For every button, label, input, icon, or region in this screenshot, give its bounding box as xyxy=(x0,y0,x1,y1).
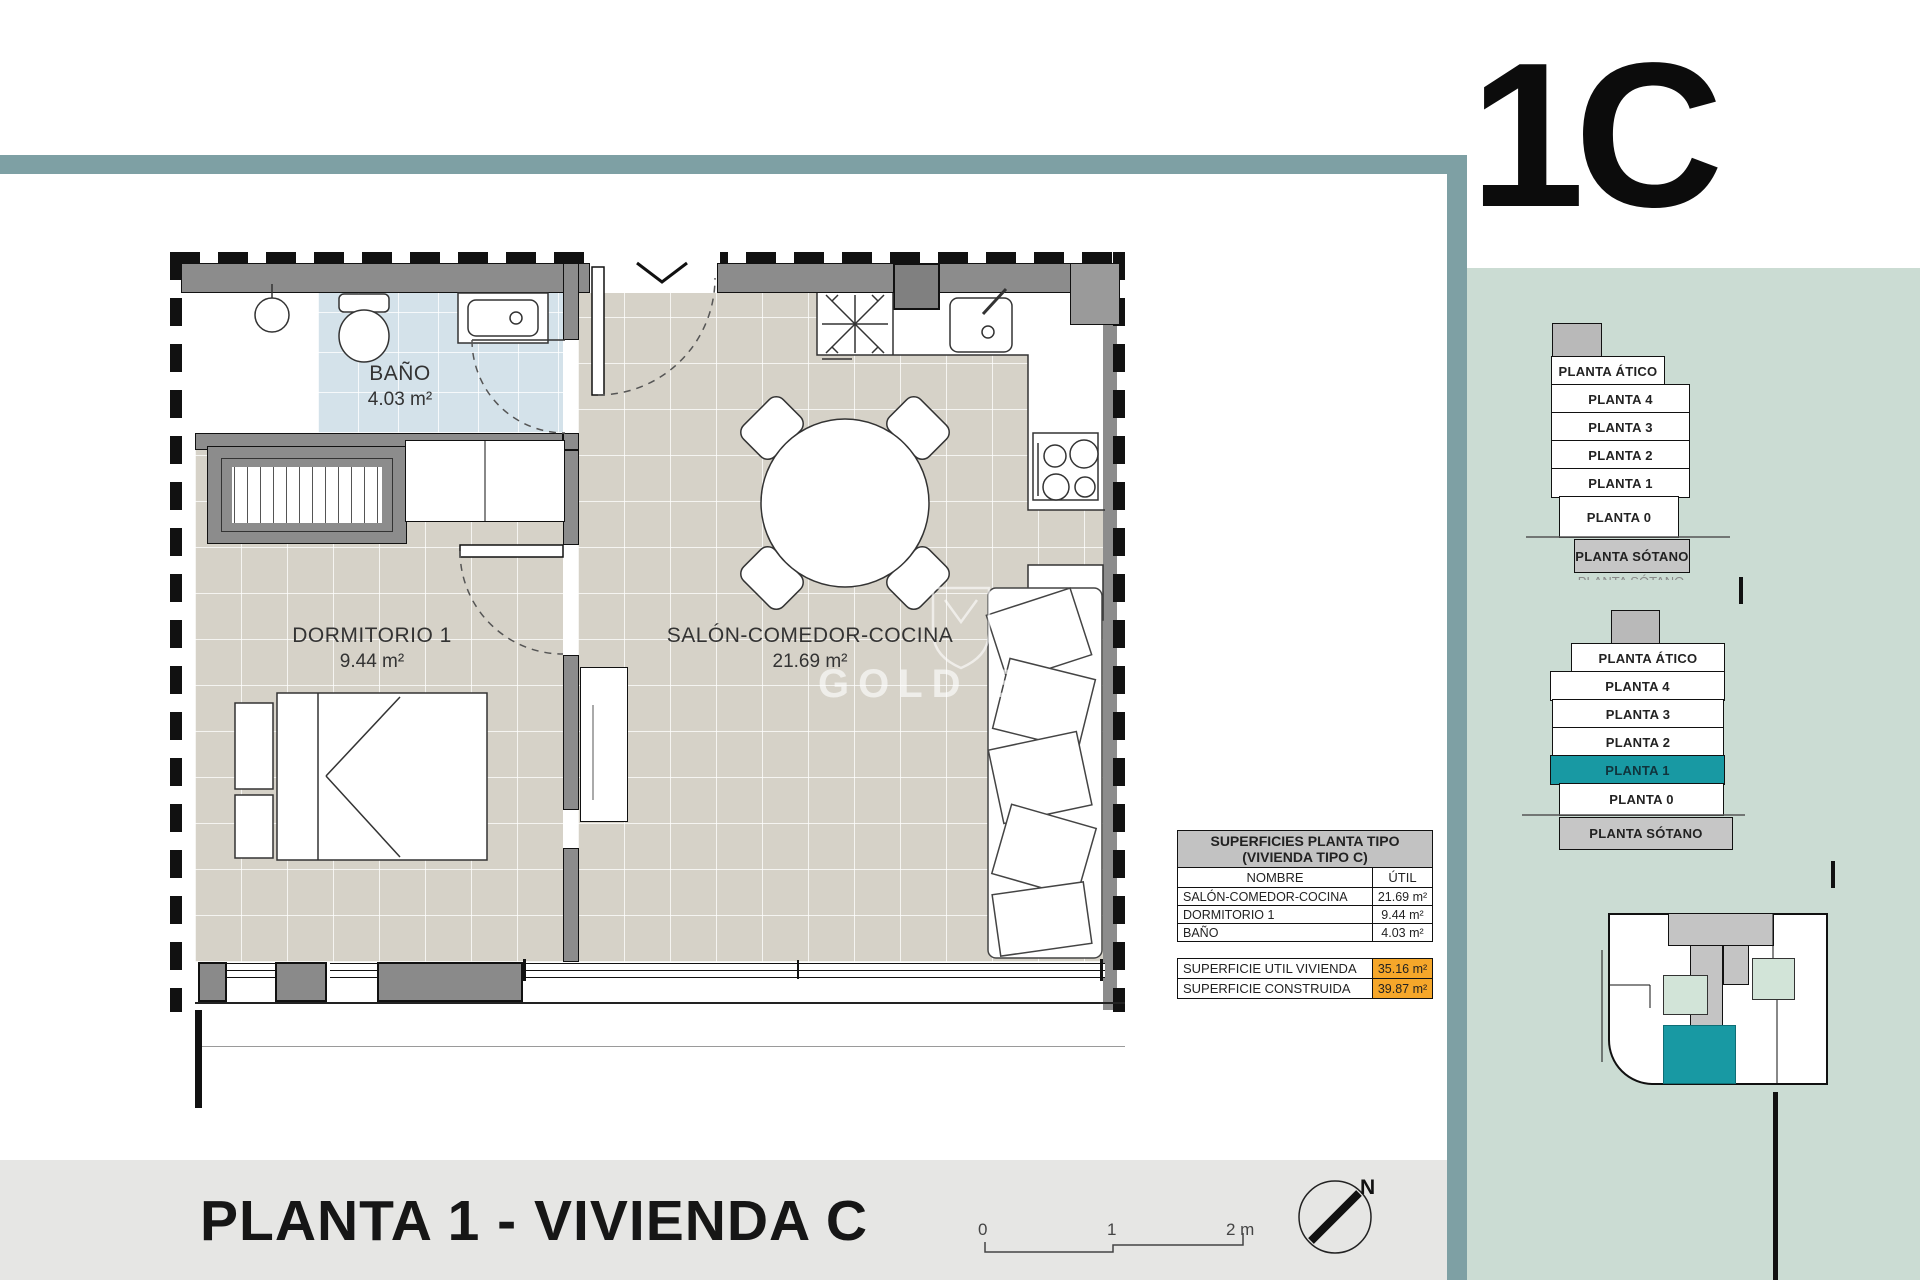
stack2-level-0: PLANTA 0 xyxy=(1559,783,1724,816)
floorplan-sheet: 1C PLANTA ÁTICO PLANTA 4 PLANTA 3 xyxy=(0,0,1920,1280)
siteplan-patio-left xyxy=(1663,975,1708,1015)
bottom-wall-block-3 xyxy=(377,962,523,1002)
room-name: DORMITORIO 1 xyxy=(292,624,452,648)
sheet-title: PLANTA 1 - VIVIENDA C xyxy=(200,1188,868,1254)
table-row-value: 4.03 m² xyxy=(1372,923,1433,942)
bathroom-label: BAÑO 4.03 m² xyxy=(368,362,432,411)
stack1-level-0: PLANTA 0 xyxy=(1559,496,1679,538)
stack1-level-2: PLANTA 2 xyxy=(1551,440,1690,470)
stack2-level-4: PLANTA 4 xyxy=(1550,671,1725,701)
table-total-value: 39.87 m² xyxy=(1372,978,1433,999)
top-wall-left xyxy=(181,263,590,293)
window-tick-left xyxy=(523,959,526,981)
stack2-tick xyxy=(1831,861,1835,888)
watermark-text: GOLD BR xyxy=(818,662,1065,707)
kitchen-corner-block xyxy=(1070,263,1120,325)
unit-label: 1C xyxy=(1470,32,1710,238)
plan-right-dashes xyxy=(1113,252,1125,1012)
stack1-chimney xyxy=(1552,323,1602,358)
scale-label-1: 1 xyxy=(1107,1220,1116,1240)
stack2-level-atico: PLANTA ÁTICO xyxy=(1571,643,1725,673)
bathroom-floor xyxy=(318,293,563,433)
vestibule-floor xyxy=(195,293,318,433)
scale-label-0: 0 xyxy=(978,1220,987,1240)
room-name: SALÓN-COMEDOR-COCINA xyxy=(667,624,954,648)
stack1-tick xyxy=(1739,577,1743,604)
stack1-level-3: PLANTA 3 xyxy=(1551,412,1690,442)
surfaces-table-header: SUPERFICIES PLANTA TIPO (VIVIENDA TIPO C… xyxy=(1177,830,1433,868)
terrace-outer-line xyxy=(195,1046,1125,1047)
window-tick-mid xyxy=(797,960,799,979)
table-row-value: 21.69 m² xyxy=(1372,887,1433,906)
closet-hatch xyxy=(221,458,393,532)
stack2-chimney xyxy=(1611,610,1660,645)
surfaces-table-title2: (VIVIENDA TIPO C) xyxy=(1242,849,1368,865)
entry-wall-block xyxy=(893,263,940,310)
stack2-level-3: PLANTA 3 xyxy=(1552,699,1724,729)
bottom-wall-block-1 xyxy=(198,962,227,1002)
stack2-level-2: PLANTA 2 xyxy=(1552,727,1724,757)
stack1-clipped-text: PLANTA SÓTANO xyxy=(1578,574,1684,580)
siteplan-core-notch xyxy=(1723,945,1749,985)
stack2-level-sotano: PLANTA SÓTANO xyxy=(1559,817,1733,850)
table-row-name: DORMITORIO 1 xyxy=(1177,905,1373,924)
corner-mark xyxy=(195,1010,202,1108)
bath-right-wall-upper xyxy=(563,263,579,340)
plan-left-dashes xyxy=(170,252,182,1012)
salon-window xyxy=(523,963,1105,978)
bedroom-window-1 xyxy=(227,963,275,978)
window-tick-right xyxy=(1100,959,1103,981)
entrance-dash-gap xyxy=(585,250,720,264)
siteplan-cut-line xyxy=(1773,1092,1778,1280)
divider-wall-a xyxy=(563,450,579,545)
col-header-util: ÚTIL xyxy=(1372,867,1433,888)
kitchen-counter-top xyxy=(817,293,1105,355)
table-total-name: SUPERFICIE CONSTRUIDA xyxy=(1177,978,1373,999)
scale-label-2m: 2 m xyxy=(1226,1220,1254,1240)
divider-wall-b xyxy=(563,655,579,810)
tv-unit xyxy=(580,667,628,822)
stack2-level-1-highlighted: PLANTA 1 xyxy=(1550,755,1725,785)
bedroom-window-2 xyxy=(330,963,377,978)
stack1-level-sotano: PLANTA SÓTANO xyxy=(1574,539,1690,573)
table-total-value: 35.16 m² xyxy=(1372,958,1433,979)
col-header-nombre: NOMBRE xyxy=(1177,867,1373,888)
surfaces-table-title1: SUPERFICIES PLANTA TIPO xyxy=(1210,833,1399,849)
siteplan-patio-right xyxy=(1752,958,1795,1000)
room-area: 9.44 m² xyxy=(292,651,452,673)
bottom-wall-block-2 xyxy=(275,962,327,1002)
siteplan-unit-highlight xyxy=(1663,1025,1736,1084)
north-label: N xyxy=(1360,1176,1375,1200)
stack1-clipped-row: PLANTA SÓTANO xyxy=(1574,573,1688,580)
kitchen-counter-right xyxy=(1028,355,1105,510)
room-area: 4.03 m² xyxy=(368,389,432,411)
bath-right-wall-stub xyxy=(563,433,579,450)
bedroom-label: DORMITORIO 1 9.44 m² xyxy=(292,624,452,673)
table-row-name: BAÑO xyxy=(1177,923,1373,942)
stack1-level-4: PLANTA 4 xyxy=(1551,384,1690,414)
siteplan-core-bar xyxy=(1668,913,1774,946)
table-row-name: SALÓN-COMEDOR-COCINA xyxy=(1177,887,1373,906)
terrace-edge-line xyxy=(195,1002,1125,1004)
divider-wall-c xyxy=(563,848,579,962)
wardrobe xyxy=(405,440,565,522)
room-name: BAÑO xyxy=(368,362,432,386)
stack1-level-atico: PLANTA ÁTICO xyxy=(1551,356,1665,386)
frame-bar-vertical xyxy=(1447,155,1467,1280)
stack1-level-1: PLANTA 1 xyxy=(1551,468,1690,498)
frame-bar-horizontal xyxy=(0,155,1467,174)
table-row-value: 9.44 m² xyxy=(1372,905,1433,924)
table-total-name: SUPERFICIE UTIL VIVIENDA xyxy=(1177,958,1373,979)
